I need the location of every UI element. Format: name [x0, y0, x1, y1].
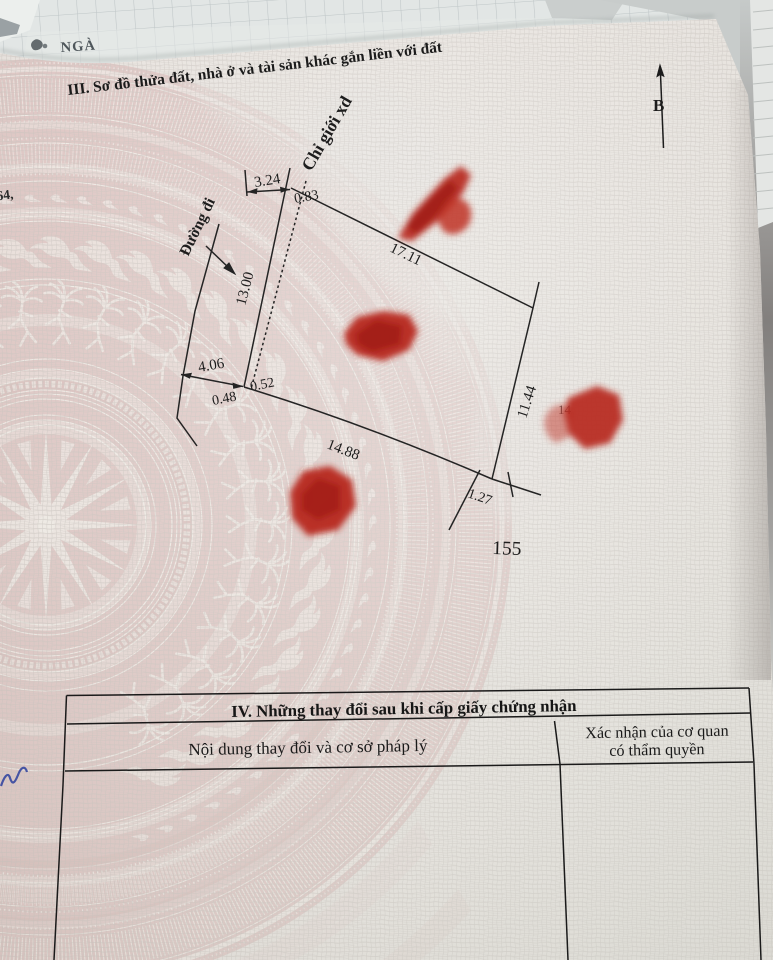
svg-text:NGÀ: NGÀ: [60, 37, 96, 56]
svg-text:Xác nhận của cơ quan: Xác nhận của cơ quan: [585, 722, 729, 742]
svg-text:155: 155: [492, 538, 522, 560]
svg-text:B: B: [653, 96, 664, 115]
svg-text:64,: 64,: [0, 186, 14, 203]
svg-text:có thẩm quyền: có thẩm quyền: [609, 740, 705, 760]
